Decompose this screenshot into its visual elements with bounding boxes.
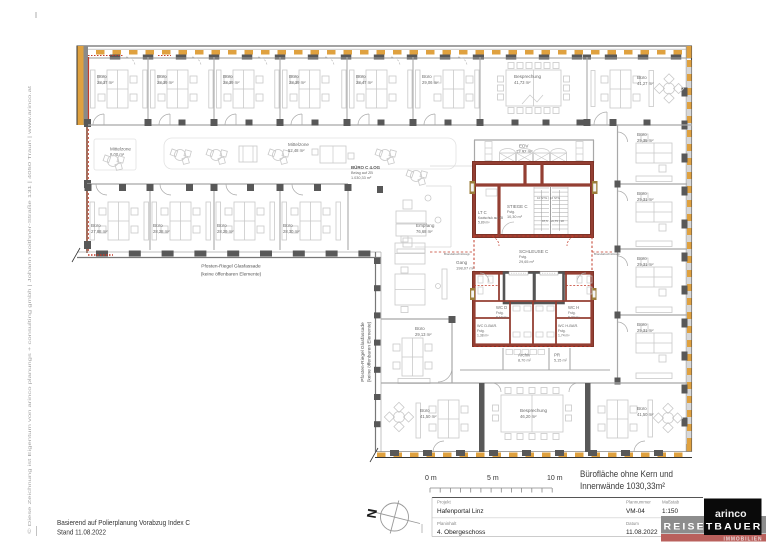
- svg-text:(keine öffenbaren Elemente): (keine öffenbaren Elemente): [367, 321, 373, 382]
- svg-text:28,39 m²: 28,39 m²: [289, 80, 306, 85]
- svg-text:Büro: Büro: [420, 408, 430, 413]
- svg-text:29,31 m²: 29,31 m²: [637, 262, 654, 267]
- svg-text:Büro: Büro: [289, 74, 299, 79]
- svg-text:arinco: arinco: [715, 508, 747, 520]
- svg-text:WC H-BAR.: WC H-BAR.: [558, 324, 578, 328]
- svg-text:Kautschuk auf ZB: Kautschuk auf ZB: [478, 216, 503, 220]
- svg-text:PR: PR: [554, 353, 560, 358]
- svg-text:5,15 m²: 5,15 m²: [554, 359, 568, 363]
- svg-text:Fstg.: Fstg.: [558, 329, 566, 333]
- svg-text:Brandabschnittssgt.: Brandabschnittssgt.: [594, 252, 621, 256]
- svg-text:Büro: Büro: [97, 74, 107, 79]
- svg-text:VM-04: VM-04: [626, 508, 645, 515]
- svg-text:9,22 m²: 9,22 m²: [568, 316, 580, 320]
- svg-text:WC D-BAR.: WC D-BAR.: [477, 324, 497, 328]
- svg-text:Büro: Büro: [637, 256, 647, 261]
- svg-text:Fstg.: Fstg.: [477, 329, 485, 333]
- svg-text:SCHLEUSE C: SCHLEUSE C: [519, 249, 549, 254]
- svg-text:WC H: WC H: [568, 305, 579, 310]
- svg-text:41,27 m²: 41,27 m²: [637, 81, 654, 86]
- svg-text:1,38 m²: 1,38 m²: [477, 334, 489, 338]
- svg-text:Büro: Büro: [157, 74, 167, 79]
- svg-text:LT C: LT C: [478, 210, 487, 215]
- svg-text:10 STG | 16 STG: 10 STG | 16 STG: [537, 196, 561, 200]
- svg-text:29,31 m²: 29,31 m²: [637, 328, 654, 333]
- svg-text:Büro: Büro: [415, 326, 425, 331]
- svg-text:Projekt: Projekt: [437, 500, 451, 505]
- svg-text:Mittelzone: Mittelzone: [110, 147, 131, 152]
- svg-text:Empfang: Empfang: [416, 223, 435, 228]
- svg-text:Büro: Büro: [637, 75, 647, 80]
- svg-text:Fstg.: Fstg.: [568, 311, 576, 315]
- svg-text:BÜRO C 4.OG: BÜRO C 4.OG: [351, 165, 381, 170]
- svg-text:Plannummer: Plannummer: [626, 500, 651, 505]
- svg-text:Büro: Büro: [283, 223, 293, 228]
- svg-text:(keine öffenbaren Elemente): (keine öffenbaren Elemente): [201, 272, 262, 278]
- svg-text:28,29 m²: 28,29 m²: [217, 229, 234, 234]
- svg-text:Besprechung: Besprechung: [520, 408, 548, 413]
- svg-text:1,74 m²: 1,74 m²: [558, 334, 570, 338]
- svg-text:10,30 m²: 10,30 m²: [507, 215, 523, 219]
- svg-text:1.030,33 m²: 1.030,33 m²: [351, 176, 372, 180]
- svg-text:Büro: Büro: [637, 132, 647, 137]
- svg-text:Belag auf ZB: Belag auf ZB: [351, 171, 373, 175]
- svg-text:Pfosten-Riegel Glasfassade: Pfosten-Riegel Glasfassade: [360, 322, 366, 382]
- svg-text:Stand 11.08.2022: Stand 11.08.2022: [57, 528, 106, 537]
- svg-text:28,28 m²: 28,28 m²: [153, 229, 170, 234]
- svg-text:52,48 m²: 52,48 m²: [288, 148, 305, 153]
- svg-text:10 m: 10 m: [547, 475, 563, 482]
- svg-text:Büro: Büro: [637, 322, 647, 327]
- svg-text:8,00 m²: 8,00 m²: [110, 152, 125, 157]
- svg-text:Büro: Büro: [637, 191, 647, 196]
- svg-text:REISETBAUER: REISETBAUER: [664, 522, 763, 533]
- svg-text:41,50 m²: 41,50 m²: [637, 412, 654, 417]
- svg-text:Fstg.: Fstg.: [507, 210, 515, 214]
- svg-text:EDV: EDV: [519, 144, 529, 149]
- svg-text:© Diese Zeichnung ist Eigentum: © Diese Zeichnung ist Eigentum von arinc…: [27, 85, 32, 534]
- svg-text:Brandabschnittssgt.: Brandabschnittssgt.: [444, 252, 471, 256]
- svg-text:29,35 m²: 29,35 m²: [637, 138, 654, 143]
- svg-text:Büro: Büro: [217, 223, 227, 228]
- svg-text:1:150: 1:150: [662, 508, 678, 515]
- svg-text:28,39 m²: 28,39 m²: [223, 80, 240, 85]
- svg-text:Fstg.: Fstg.: [496, 311, 504, 315]
- svg-text:IMMOBILIEN: IMMOBILIEN: [724, 537, 763, 543]
- svg-text:11.08.2022: 11.08.2022: [626, 529, 658, 536]
- svg-text:9,10 m²: 9,10 m²: [496, 316, 508, 320]
- svg-text:5 m: 5 m: [487, 475, 499, 482]
- svg-text:Basierend auf Polierplanung Vo: Basierend auf Polierplanung Vorabzug Ind…: [57, 518, 191, 527]
- svg-text:41,50 m²: 41,50 m²: [420, 414, 437, 419]
- svg-text:Fstg.: Fstg.: [519, 255, 527, 259]
- svg-text:Bürofläche ohne Kern und: Bürofläche ohne Kern und: [580, 469, 673, 479]
- svg-text:Innenwände 1030,33m²: Innenwände 1030,33m²: [580, 481, 665, 491]
- svg-text:Büro: Büro: [91, 223, 101, 228]
- svg-text:Archiv: Archiv: [518, 353, 531, 358]
- svg-text:76,68 m²: 76,68 m²: [416, 229, 433, 234]
- svg-text:28,47 m²: 28,47 m²: [356, 80, 373, 85]
- svg-text:29,13 m²: 29,13 m²: [415, 332, 432, 337]
- svg-text:Büro: Büro: [223, 74, 233, 79]
- svg-text:28,37 m²: 28,37 m²: [97, 80, 114, 85]
- svg-text:41,73 m²: 41,73 m²: [514, 80, 531, 85]
- svg-text:Besprechung: Besprechung: [514, 74, 542, 79]
- svg-text:46,20 m²: 46,20 m²: [520, 414, 537, 419]
- svg-text:Mittelzone: Mittelzone: [288, 142, 309, 147]
- svg-text:Planinhalt: Planinhalt: [437, 521, 457, 526]
- svg-text:97,5 · 16,75 | 18: 97,5 · 16,75 | 18: [542, 219, 564, 223]
- svg-text:29,65 m²: 29,65 m²: [519, 260, 535, 264]
- svg-text:28,30 m²: 28,30 m²: [283, 229, 300, 234]
- svg-text:STIEGE C: STIEGE C: [507, 204, 528, 209]
- svg-text:29,31 m²: 29,31 m²: [637, 197, 654, 202]
- svg-text:4. Obergeschoss: 4. Obergeschoss: [437, 529, 485, 536]
- svg-text:0 m: 0 m: [425, 475, 437, 482]
- svg-text:Büro: Büro: [153, 223, 163, 228]
- svg-text:8,70 m²: 8,70 m²: [518, 359, 532, 363]
- svg-text:Hafenportal Linz: Hafenportal Linz: [437, 508, 484, 515]
- svg-text:198,07 m²: 198,07 m²: [456, 266, 475, 271]
- svg-text:29,06 m²: 29,06 m²: [422, 80, 439, 85]
- svg-text:WC D: WC D: [496, 305, 507, 310]
- svg-text:Pfosten-Riegel Glasfassade: Pfosten-Riegel Glasfassade: [201, 264, 261, 270]
- svg-text:Datum: Datum: [626, 521, 639, 526]
- svg-text:5,89 m²: 5,89 m²: [478, 221, 490, 225]
- svg-text:Büro: Büro: [356, 74, 366, 79]
- svg-text:Gang: Gang: [456, 260, 468, 265]
- svg-text:Büro: Büro: [422, 74, 432, 79]
- svg-text:28,39 m²: 28,39 m²: [157, 80, 174, 85]
- svg-text:27,88 m²: 27,88 m²: [91, 229, 108, 234]
- svg-text:Maßstab: Maßstab: [662, 500, 680, 505]
- svg-text:Büro: Büro: [637, 406, 647, 411]
